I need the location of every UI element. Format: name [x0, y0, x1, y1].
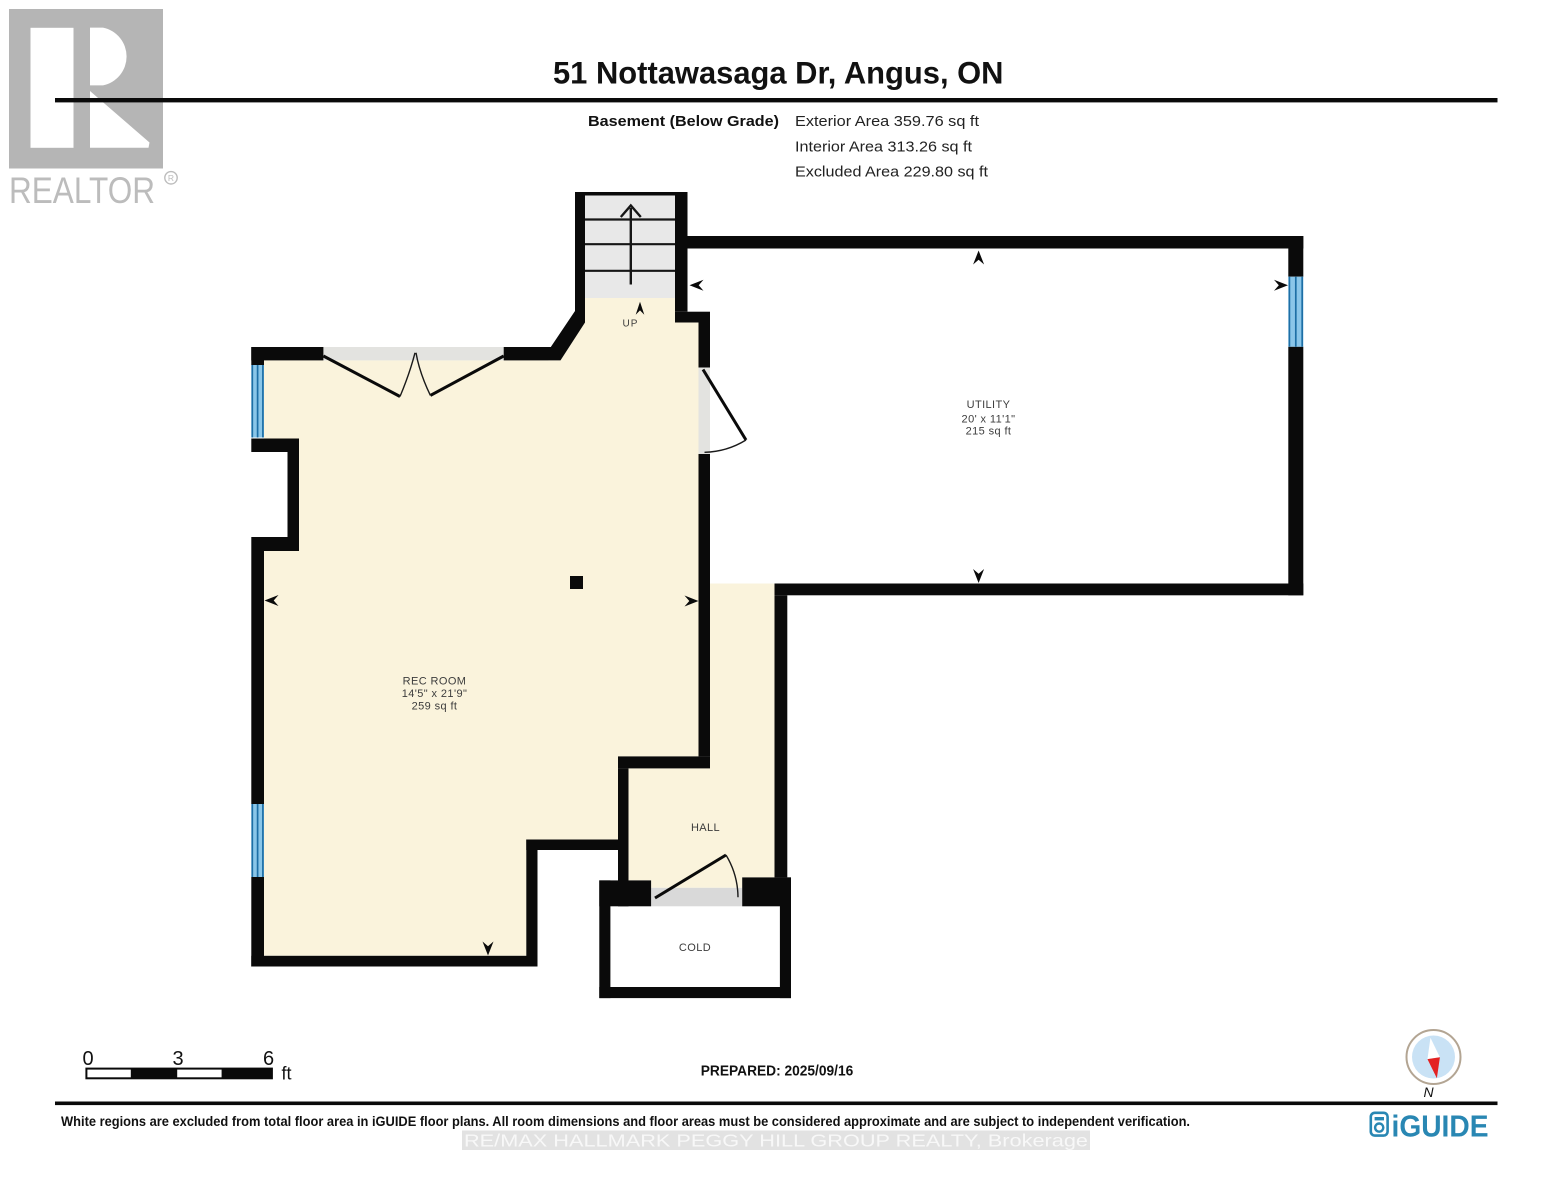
svg-text:ft: ft [282, 1064, 292, 1084]
svg-text:Interior Area 313.26 sq ft: Interior Area 313.26 sq ft [795, 139, 973, 156]
svg-text:3: 3 [172, 1048, 183, 1070]
svg-text:0: 0 [82, 1048, 93, 1070]
svg-text:20' x 11'1": 20' x 11'1" [962, 414, 1016, 426]
svg-text:14'5" x 21'9": 14'5" x 21'9" [402, 688, 468, 700]
svg-text:RE/MAX HALLMARK PEGGY HILL GRO: RE/MAX HALLMARK PEGGY HILL GROUP REALTY,… [464, 1131, 1088, 1151]
svg-text:Basement (Below Grade): Basement (Below Grade) [588, 113, 779, 130]
svg-text:UP: UP [623, 319, 639, 330]
svg-text:REC ROOM: REC ROOM [403, 676, 467, 688]
svg-text:Excluded Area 229.80 sq ft: Excluded Area 229.80 sq ft [795, 164, 989, 181]
svg-text:White regions are excluded fro: White regions are excluded from total fl… [61, 1113, 1190, 1129]
svg-text:6: 6 [263, 1048, 274, 1070]
svg-text:COLD: COLD [679, 942, 711, 954]
svg-text:259 sq ft: 259 sq ft [412, 701, 458, 713]
svg-text:PREPARED: 2025/09/16: PREPARED: 2025/09/16 [701, 1064, 854, 1080]
svg-text:iGUIDE: iGUIDE [1392, 1109, 1489, 1144]
svg-text:HALL: HALL [691, 822, 720, 834]
svg-text:REALTOR: REALTOR [9, 170, 155, 211]
svg-text:UTILITY: UTILITY [967, 399, 1011, 411]
svg-text:R: R [168, 173, 174, 183]
svg-text:N: N [1424, 1084, 1435, 1100]
svg-text:51 Nottawasaga Dr, Angus, ON: 51 Nottawasaga Dr, Angus, ON [553, 55, 1004, 91]
svg-text:Exterior Area 359.76 sq ft: Exterior Area 359.76 sq ft [795, 113, 980, 130]
svg-text:215 sq ft: 215 sq ft [966, 426, 1012, 438]
